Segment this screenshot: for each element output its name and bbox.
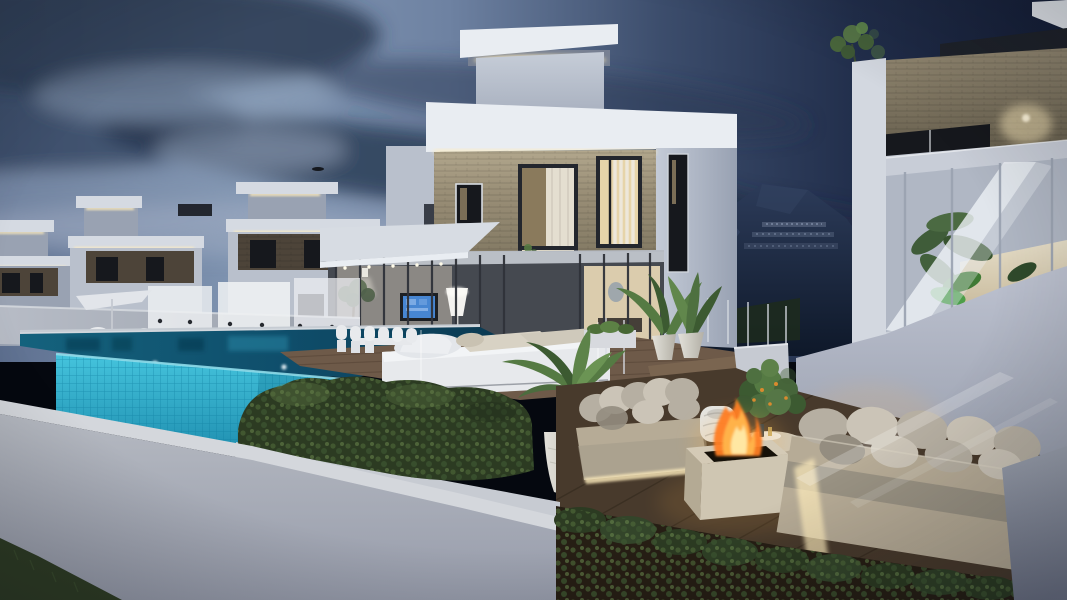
vignette-overlay xyxy=(0,0,1067,600)
architectural-render-image xyxy=(0,0,1067,600)
render-canvas xyxy=(0,0,1067,600)
